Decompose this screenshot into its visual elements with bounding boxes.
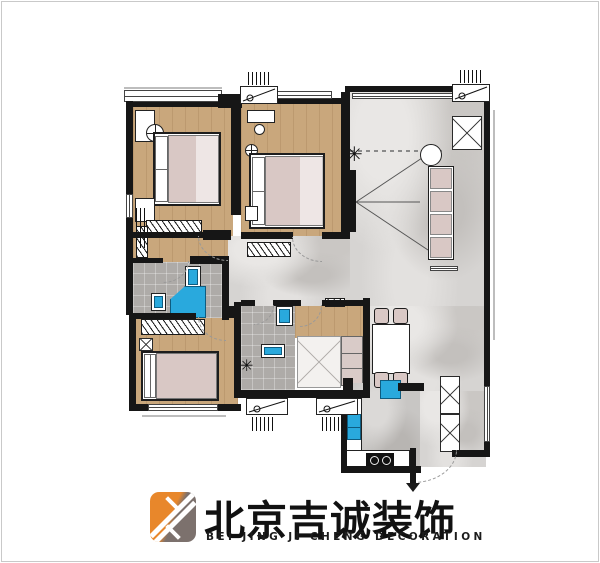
wardrobe-sliding <box>141 319 205 335</box>
stool <box>254 124 265 135</box>
wall <box>322 232 350 239</box>
entry-door-arc <box>413 450 457 483</box>
side-table-round <box>420 144 442 166</box>
wall <box>341 92 350 236</box>
wall <box>133 258 163 263</box>
entry-door-leaf <box>410 448 416 484</box>
brand-logo-icon <box>150 492 196 542</box>
wardrobe-sliding <box>247 242 291 257</box>
window-sill <box>142 415 226 417</box>
ac-symbol-icon <box>453 85 489 101</box>
brand-name-en: BEI JING JI CHENG DECORATION <box>206 531 486 543</box>
plant-icon: ✳ <box>240 358 253 374</box>
burner-icon <box>382 456 391 465</box>
ac-unit <box>246 398 288 415</box>
window <box>126 194 133 218</box>
window <box>148 404 218 411</box>
wall <box>341 466 421 473</box>
tv-unit <box>349 170 356 232</box>
sofa-cushion <box>430 191 452 212</box>
dining-chair <box>374 308 389 324</box>
nightstand <box>245 206 258 221</box>
bed-blanket <box>156 353 217 399</box>
kitchen-sink <box>347 414 361 440</box>
wall <box>241 300 255 306</box>
sofa-cushion <box>430 214 452 235</box>
ac-exhaust-icon <box>248 72 270 85</box>
ac-unit <box>452 84 490 102</box>
wall <box>234 302 241 394</box>
floorplan-page: { "brand": { "name_cn": "北京吉诚装饰", "name_… <box>0 0 600 563</box>
shoe-cabinet <box>440 414 460 452</box>
bed-sheet <box>196 136 218 202</box>
sofa-console <box>430 266 458 271</box>
ac-symbol-icon <box>317 399 357 414</box>
washbasin <box>185 266 201 288</box>
dresser <box>247 110 275 123</box>
wall <box>398 383 424 391</box>
burner-icon <box>370 456 379 465</box>
wall <box>133 232 203 238</box>
bedside-table <box>139 338 153 351</box>
wall <box>322 300 365 306</box>
window-sill <box>124 87 222 89</box>
wall <box>343 378 353 394</box>
ac-exhaust-icon <box>252 417 276 431</box>
ac-exhaust-icon <box>322 417 346 431</box>
window <box>484 386 490 442</box>
washbasin <box>276 306 293 326</box>
ac-exhaust-icon <box>460 70 482 83</box>
sofa <box>428 166 454 260</box>
ac-symbol-icon <box>241 87 277 103</box>
stove <box>366 453 394 466</box>
window <box>352 93 456 99</box>
window-sill <box>493 110 495 340</box>
bed-pillows <box>144 354 156 398</box>
wall <box>129 313 196 319</box>
dining-chair <box>393 308 408 324</box>
toilet <box>261 344 285 358</box>
ac-symbol-icon <box>247 399 287 414</box>
radiator <box>136 208 148 248</box>
toilet <box>151 293 166 311</box>
shoe-cabinet <box>440 376 460 414</box>
ac-unit <box>240 86 278 104</box>
bed-sheet <box>300 157 323 225</box>
wall <box>363 298 370 393</box>
bed-pillows <box>155 136 168 202</box>
wall <box>129 315 136 411</box>
tv-sightlines <box>348 140 488 280</box>
study-platform <box>297 336 341 388</box>
wall <box>241 232 293 239</box>
ac-unit <box>316 398 358 415</box>
dining-table <box>372 324 410 374</box>
wall <box>231 101 241 215</box>
bay-window <box>124 90 222 102</box>
entry-closet <box>452 116 482 150</box>
wall <box>273 300 295 306</box>
sofa-cushion <box>430 168 452 189</box>
sofa-cushion <box>430 237 452 258</box>
